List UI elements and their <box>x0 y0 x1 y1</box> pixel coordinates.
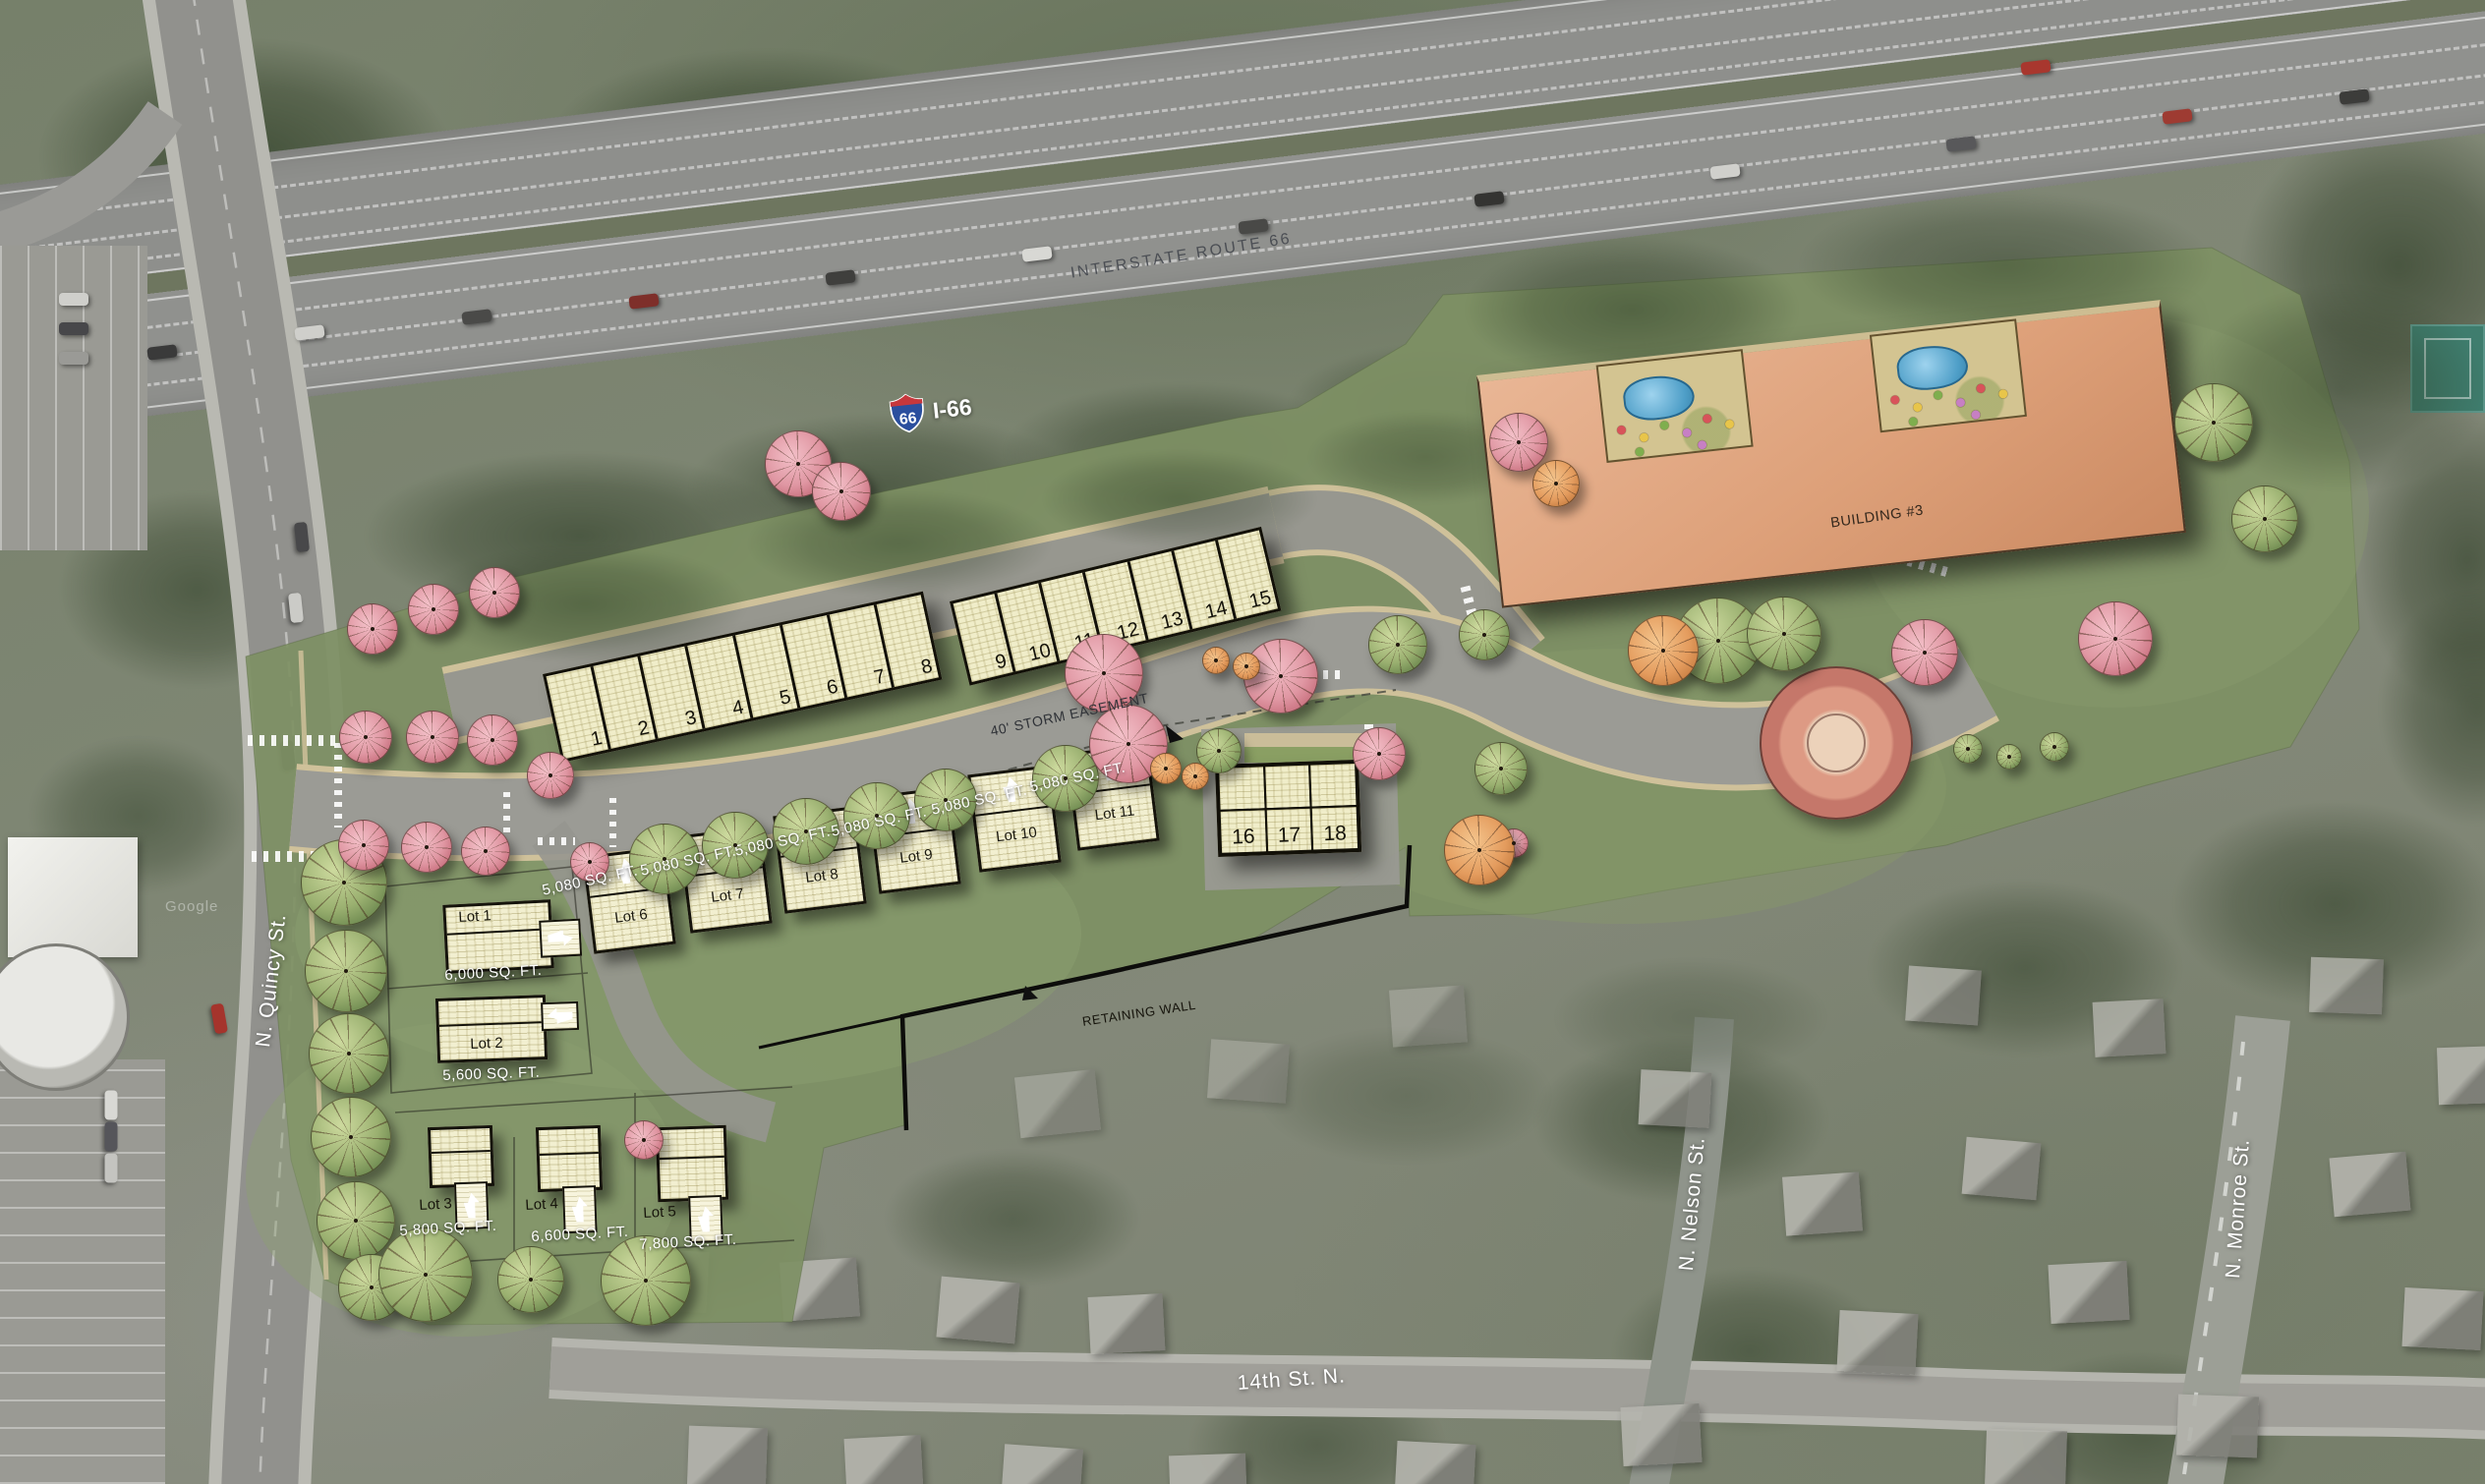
site-plan-aerial-map: 123456789101112131415161718 Lot 6Lot 7Lo… <box>0 0 2485 1484</box>
treeline <box>1042 450 1317 548</box>
pink-tree <box>461 827 510 876</box>
garage-wing <box>541 1001 579 1031</box>
lot-label: Lot 1 <box>458 907 491 926</box>
garden-flower-dot <box>1682 428 1692 437</box>
pink-tree <box>408 584 459 635</box>
pink-tree <box>401 822 452 873</box>
lot-label: Lot 7 <box>688 883 766 908</box>
pink-tree <box>1891 619 1958 686</box>
unit-number: 5 <box>778 686 793 711</box>
treeline <box>2192 285 2485 491</box>
garden-flower-dot <box>1934 390 1943 400</box>
lot-label: Lot 3 <box>419 1195 452 1214</box>
townhouse-unit <box>1264 765 1311 810</box>
driveway-arrow-icon <box>698 1206 715 1232</box>
pink-tree <box>527 752 574 799</box>
pink-tree <box>339 711 392 764</box>
imagery-watermark: Google <box>165 898 218 915</box>
crosswalk-marking <box>538 837 575 845</box>
green-tree <box>1368 615 1427 674</box>
crosswalk-marking <box>334 743 342 828</box>
lot-label: Lot 10 <box>977 822 1055 847</box>
treeline <box>1258 1027 1553 1165</box>
lot-house <box>435 995 548 1063</box>
garden-flower-dot <box>1725 420 1735 429</box>
green-tree <box>378 1227 473 1322</box>
courtyard-garden <box>1870 318 2027 432</box>
garden-flower-dot <box>1956 398 1966 408</box>
pink-tree <box>1353 727 1406 780</box>
lot-house <box>656 1125 729 1202</box>
garden-flower-dot <box>1976 383 1986 393</box>
unit-number: 16 <box>1220 825 1266 850</box>
driveway-arrow-icon <box>571 1196 588 1223</box>
crosswalk-marking <box>248 735 346 746</box>
i66-label: I-66 <box>932 393 973 424</box>
circular-plaza-fountain <box>1760 666 1913 820</box>
garden-flower-dot <box>1971 410 1981 420</box>
townhouse-unit: 18 <box>1311 806 1358 851</box>
green-tree <box>305 930 387 1012</box>
green-tree <box>317 1181 395 1260</box>
pink-tree <box>467 714 518 766</box>
orange-tree <box>1202 647 1230 674</box>
green-tree <box>1459 609 1510 660</box>
green-tree <box>2174 383 2253 462</box>
treeline <box>1553 958 1828 1076</box>
lot-label: Lot 8 <box>782 863 860 888</box>
green-tree <box>1953 734 1983 764</box>
pink-tree <box>406 711 459 764</box>
townhouse-row: 161718 <box>1215 760 1361 857</box>
unit-number: 17 <box>1266 824 1312 849</box>
garden-flower-dot <box>1635 447 1645 457</box>
lot-label: Lot 2 <box>470 1035 503 1053</box>
lot-label: Lot 6 <box>592 903 669 929</box>
green-tree <box>2231 485 2298 552</box>
orange-tree <box>1628 615 1699 686</box>
unit-number: 18 <box>1311 822 1358 847</box>
green-tree <box>497 1246 564 1313</box>
lot-house <box>536 1125 603 1192</box>
treeline <box>747 489 1052 598</box>
orange-tree <box>1444 815 1515 885</box>
green-tree <box>1474 742 1528 795</box>
orange-tree <box>1233 653 1260 680</box>
unit-number: 14 <box>1203 598 1230 625</box>
unit-number: 13 <box>1159 607 1185 635</box>
pink-tree <box>812 462 871 521</box>
orange-tree <box>1182 763 1209 790</box>
roof-ridge-line <box>447 928 549 935</box>
garden-flower-dot <box>1998 389 2008 399</box>
crosswalk-marking <box>503 792 510 837</box>
unit-number: 4 <box>730 696 746 720</box>
green-tree <box>311 1097 391 1177</box>
green-tree <box>309 1013 389 1094</box>
garage-wing <box>539 919 582 959</box>
lot-sqft-label: 5,600 SQ. FT. <box>442 1064 541 1084</box>
roof-ridge-line <box>660 1156 724 1160</box>
pink-tree <box>2078 601 2153 676</box>
townhouse-unit: 16 <box>1220 809 1267 854</box>
pink-tree <box>1489 413 1548 472</box>
pool <box>1621 372 1696 424</box>
roof-ridge-line <box>439 1021 544 1027</box>
lot-label: Lot 4 <box>525 1195 558 1214</box>
driveway-arrow-icon <box>547 1007 573 1024</box>
garden-flower-dot <box>1659 421 1669 430</box>
pink-tree <box>338 820 389 871</box>
lot-house <box>428 1125 494 1188</box>
unit-number: 1 <box>589 727 605 752</box>
unit-number: 2 <box>636 716 652 741</box>
pink-tree <box>469 567 520 618</box>
unit-number: 15 <box>1247 587 1274 614</box>
unit-number: 7 <box>872 665 888 690</box>
driveway-arrow-icon <box>548 930 574 946</box>
unit-number: 3 <box>683 707 699 731</box>
roof-ridge-line <box>540 1152 599 1156</box>
garden-flower-dot <box>1703 414 1712 424</box>
orange-tree <box>1532 460 1580 507</box>
garden-flower-dot <box>1913 402 1923 412</box>
courtyard-garden <box>1596 349 1754 463</box>
driveway-arrow-icon <box>463 1192 480 1219</box>
townhouse-unit <box>1309 763 1357 808</box>
unit-number: 8 <box>919 656 935 680</box>
garden-flower-dot <box>1890 395 1900 405</box>
pink-tree <box>347 603 398 655</box>
roof-ridge-line <box>432 1150 491 1154</box>
unit-number: 9 <box>993 650 1009 674</box>
pool <box>1895 342 1970 393</box>
crosswalk-marking <box>609 798 616 847</box>
pink-tree <box>624 1120 664 1160</box>
green-tree <box>1747 597 1821 671</box>
green-tree <box>2040 732 2069 762</box>
unit-number: 10 <box>1026 640 1053 667</box>
interstate-shield-icon: 66 <box>888 392 927 435</box>
lot-label: Lot 5 <box>643 1203 676 1222</box>
garden-flower-dot <box>1908 417 1918 427</box>
svg-text:66: 66 <box>898 410 917 428</box>
garden-flower-dot <box>1698 440 1707 450</box>
orange-tree <box>1150 753 1182 784</box>
garden-flower-dot <box>1617 426 1627 435</box>
unit-number: 6 <box>825 676 840 701</box>
green-tree <box>1996 744 2022 770</box>
townhouse-unit: 17 <box>1265 808 1312 853</box>
garden-flower-dot <box>1639 432 1648 442</box>
